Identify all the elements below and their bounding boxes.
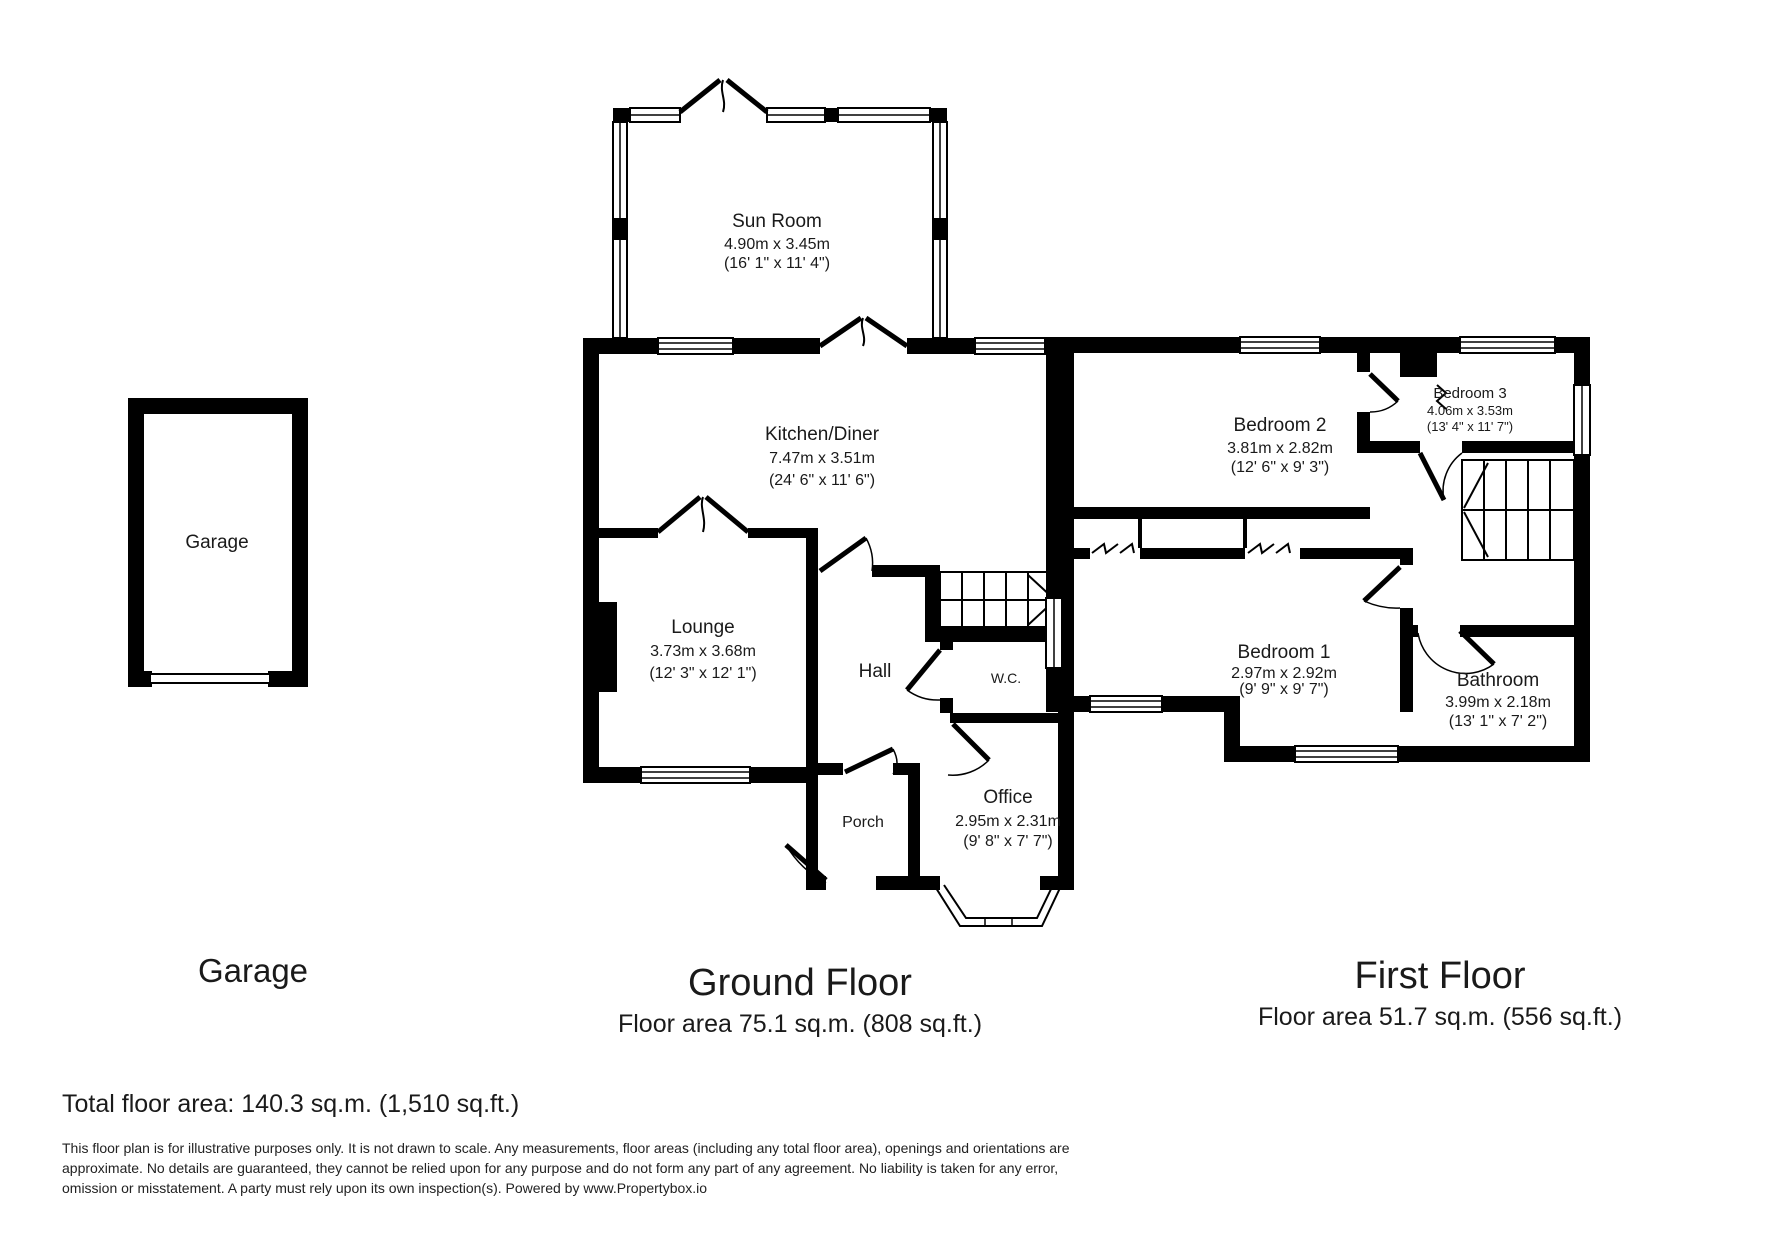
first-floor-area: Floor area 51.7 sq.m. (556 sq.ft.): [1258, 1003, 1622, 1031]
disclaimer-line-3: omission or misstatement. A party must r…: [62, 1180, 707, 1196]
wc-label: W.C.: [991, 670, 1021, 686]
kitchen-diner-imperial: (24' 6" x 11' 6"): [769, 472, 875, 489]
ground-floor-labels: Sun Room 4.90m x 3.45m (16' 1" x 11' 4")…: [649, 211, 1061, 850]
lounge-label: Lounge: [671, 617, 734, 638]
porch-label: Porch: [842, 814, 884, 831]
ground-floor-area: Floor area 75.1 sq.m. (808 sq.ft.): [618, 1010, 982, 1038]
bedroom2-metric: 3.81m x 2.82m: [1227, 440, 1333, 457]
total-floor-area: Total floor area: 140.3 sq.m. (1,510 sq.…: [62, 1090, 519, 1118]
first-floor-stairs: [1462, 460, 1574, 560]
floorplan-drawing: Garage: [0, 0, 1771, 1239]
office-label: Office: [983, 787, 1032, 808]
garage-door: [150, 674, 270, 683]
lounge-imperial: (12' 3" x 12' 1"): [649, 665, 756, 682]
floorplan-page: Garage: [0, 0, 1771, 1239]
bedroom1-label: Bedroom 1: [1238, 642, 1331, 663]
bedroom1-imperial: (9' 9" x 9' 7"): [1239, 681, 1329, 698]
hall-label: Hall: [859, 661, 892, 682]
bedroom3-imperial: (13' 4" x 11' 7"): [1427, 419, 1513, 434]
sun-room-imperial: (16' 1" x 11' 4"): [724, 255, 830, 272]
office-imperial: (9' 8" x 7' 7"): [963, 833, 1053, 850]
bedroom3-label: Bedroom 3: [1433, 385, 1506, 402]
titles: Garage Ground Floor Floor area 75.1 sq.m…: [62, 952, 1622, 1196]
ground-floor-title: Ground Floor: [688, 962, 912, 1004]
garage-room-label: Garage: [185, 532, 248, 553]
bedroom2-imperial: (12' 6" x 9' 3"): [1231, 459, 1329, 476]
lounge-metric: 3.73m x 3.68m: [650, 643, 756, 660]
bathroom-imperial: (13' 1" x 7' 2"): [1449, 713, 1547, 730]
disclaimer-line-2: approximate. No details are guaranteed, …: [62, 1160, 1058, 1176]
office-metric: 2.95m x 2.31m: [955, 813, 1061, 830]
bedroom2-label: Bedroom 2: [1234, 415, 1327, 436]
kitchen-diner-metric: 7.47m x 3.51m: [769, 450, 875, 467]
bedroom1-metric: 2.97m x 2.92m: [1231, 665, 1337, 682]
ground-floor-stairs: [940, 572, 1058, 627]
bathroom-metric: 3.99m x 2.18m: [1445, 694, 1551, 711]
sun-room-structure: [613, 80, 947, 338]
garage-title: Garage: [198, 952, 308, 989]
sun-room-label: Sun Room: [732, 211, 822, 232]
bedroom3-metric: 4.06m x 3.53m: [1427, 403, 1513, 418]
kitchen-diner-label: Kitchen/Diner: [765, 424, 880, 445]
sun-room-metric: 4.90m x 3.45m: [724, 236, 830, 253]
bathroom-label: Bathroom: [1457, 670, 1539, 691]
garage-plan: Garage: [128, 398, 308, 687]
disclaimer-line-1: This floor plan is for illustrative purp…: [62, 1140, 1070, 1156]
first-floor-title: First Floor: [1355, 955, 1526, 997]
